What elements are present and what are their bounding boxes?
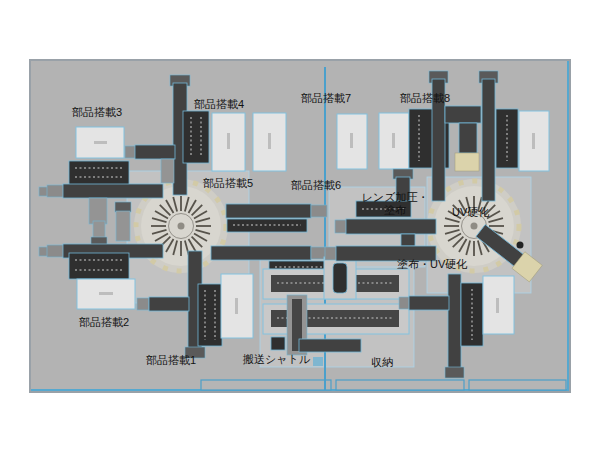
label-storage: 収納 [371, 356, 393, 369]
machine-layout-diagram: 部品搭載3 部品搭載4 部品搭載7 部品搭載8 部品搭載5 部品搭載6 レンズ加… [29, 59, 571, 393]
bottom-bases [201, 380, 566, 390]
label-uv-cure: UV硬化 [452, 206, 489, 219]
label-station-8: 部品搭載8 [400, 92, 450, 105]
label-station-7: 部品搭載7 [301, 92, 351, 105]
label-station-5: 部品搭載5 [203, 177, 253, 190]
label-transport-shuttle: 搬送シャトル [243, 353, 310, 366]
label-station-3: 部品搭載3 [72, 106, 122, 119]
machine-layout-page: 部品搭載3 部品搭載4 部品搭載7 部品搭載8 部品搭載5 部品搭載6 レンズ加… [0, 0, 600, 450]
label-station-1: 部品搭載1 [146, 354, 196, 367]
label-lens-press-line1: レンズ加圧・ [357, 191, 433, 204]
coat-uv-module [399, 274, 514, 378]
label-station-2: 部品搭載2 [79, 316, 129, 329]
label-lens-press-coat: レンズ加圧・ 塗布 [357, 191, 433, 216]
station7-trays [337, 113, 409, 169]
label-station-4: 部品搭載4 [194, 98, 244, 111]
label-coat-uv-cure: 塗布・UV硬化 [397, 258, 467, 271]
label-lens-press-line2: 塗布 [357, 204, 433, 217]
label-station-6: 部品搭載6 [291, 179, 341, 192]
